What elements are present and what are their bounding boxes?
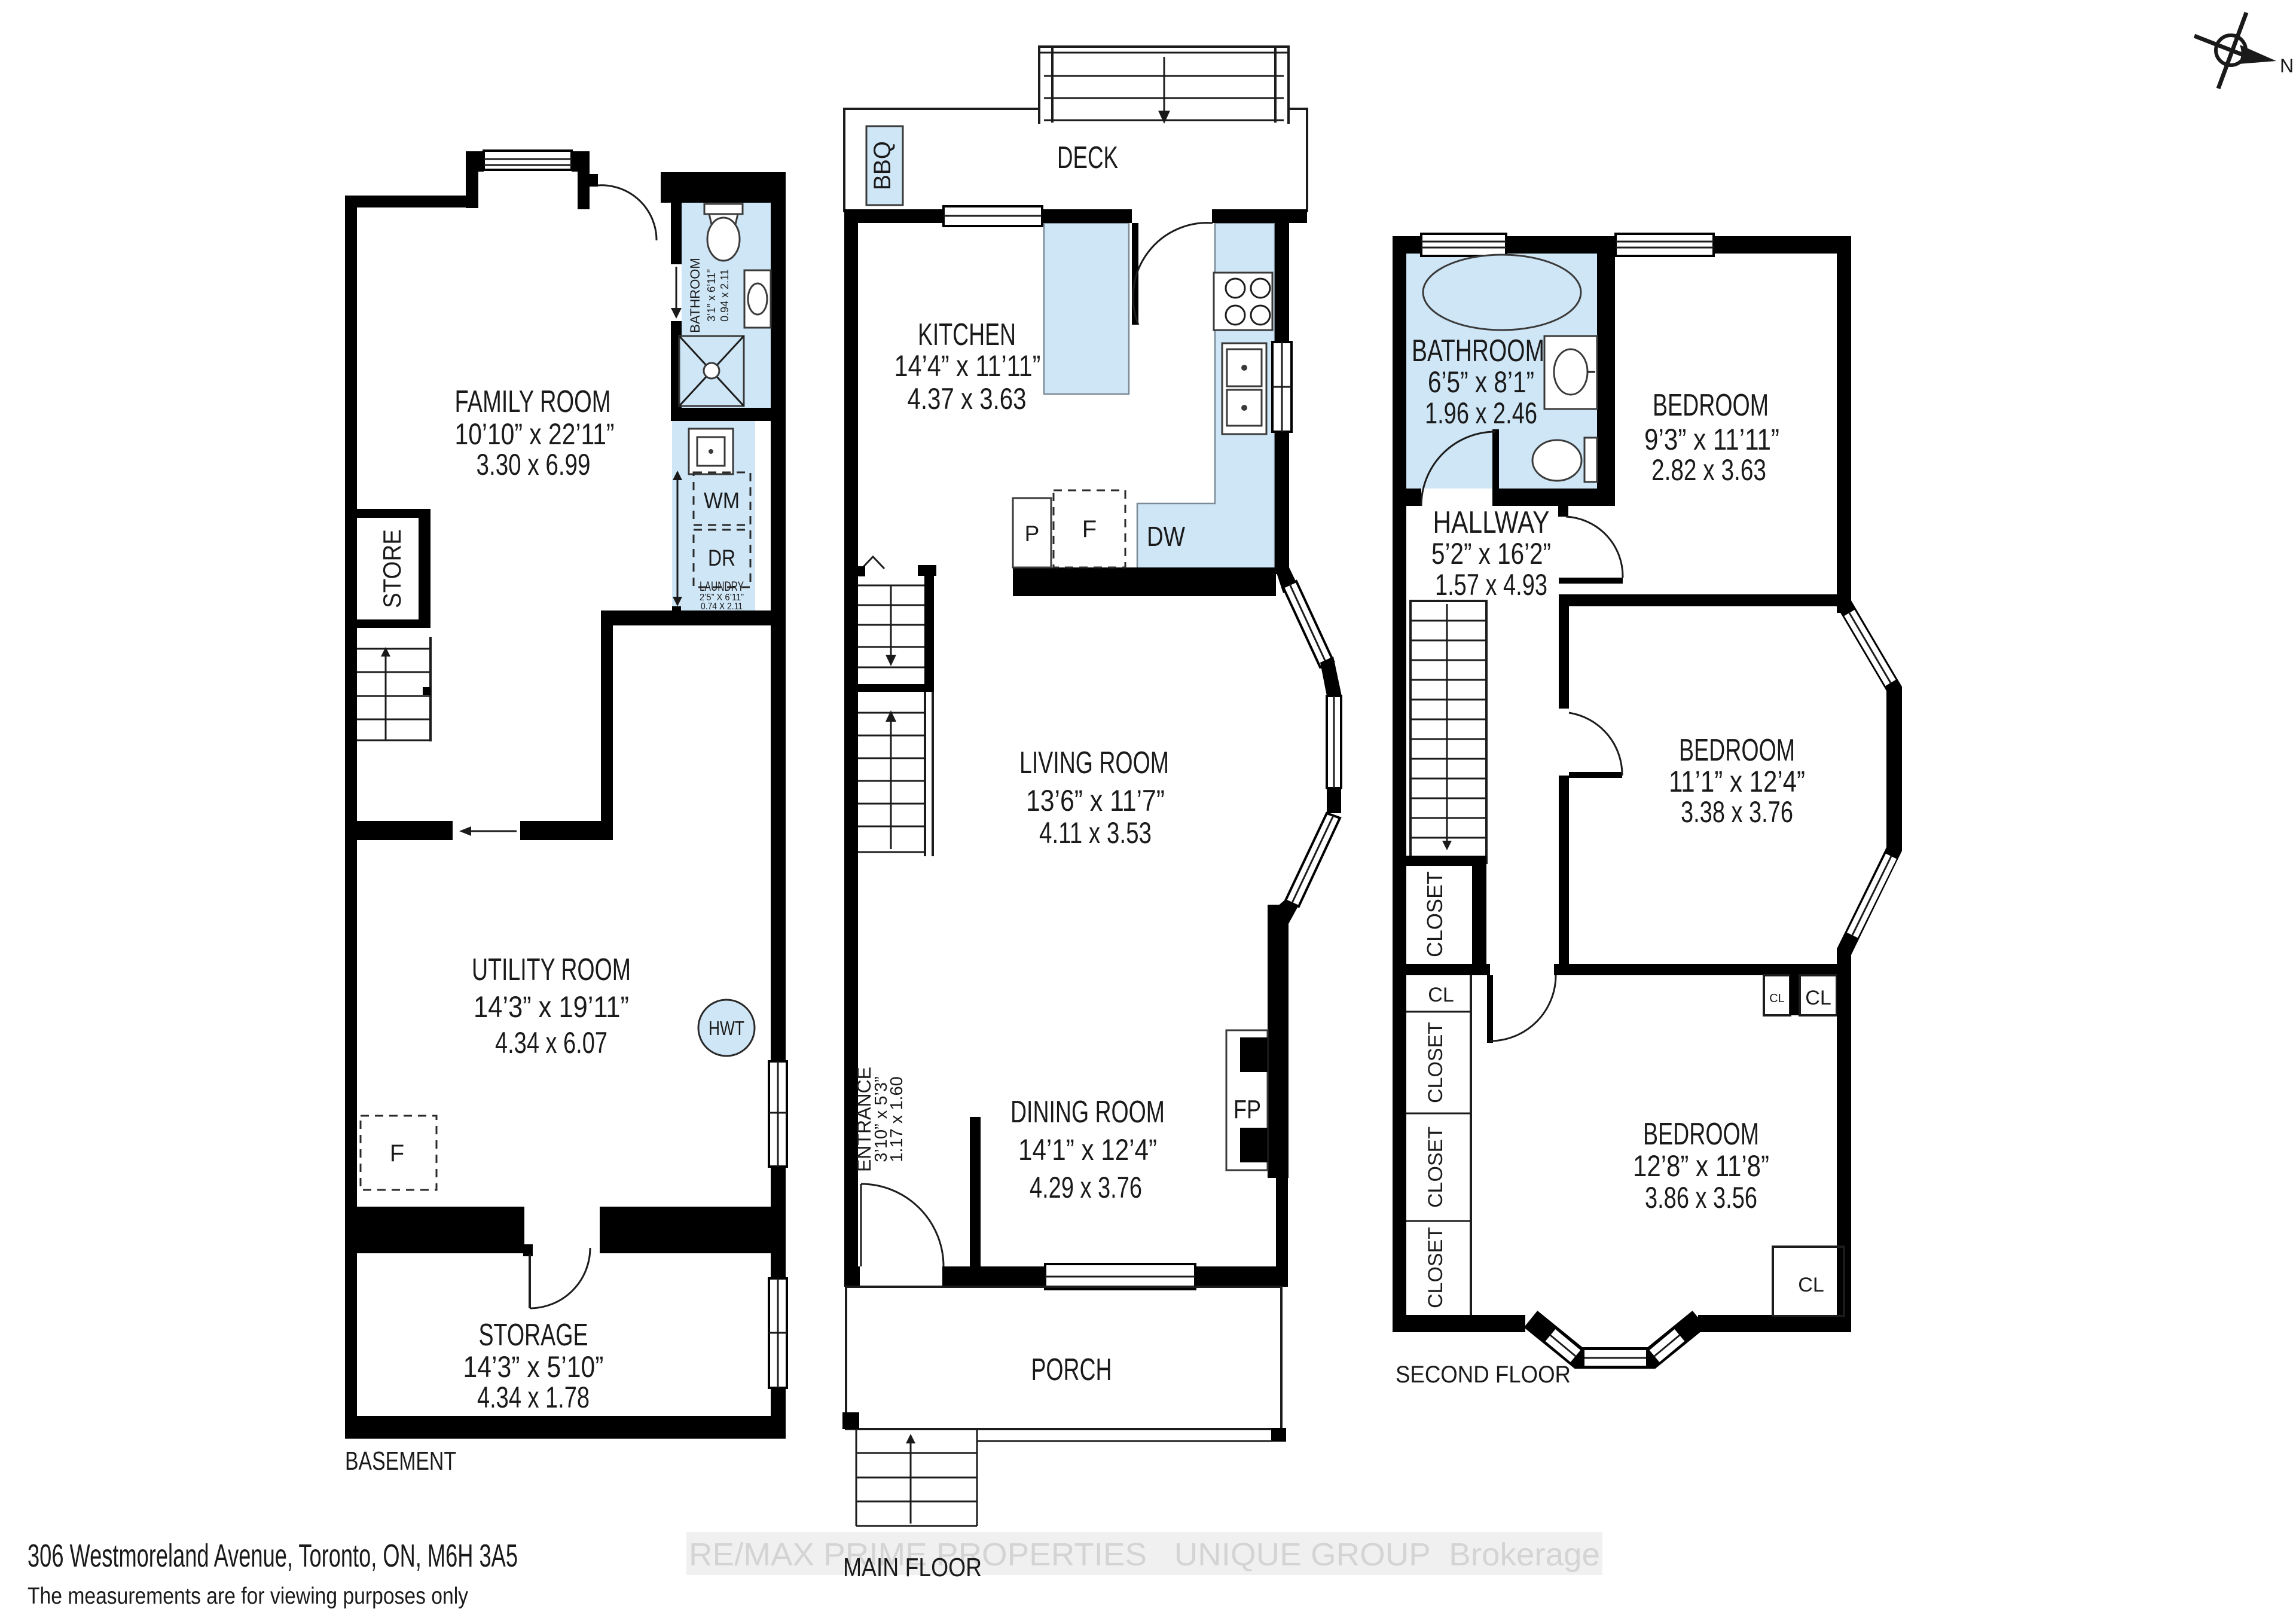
svg-text:3.30 x 6.99: 3.30 x 6.99 [477, 448, 591, 481]
svg-text:4.11 x 3.53: 4.11 x 3.53 [1039, 816, 1152, 850]
svg-text:LAUNDRY: LAUNDRY [700, 579, 744, 594]
svg-text:PORCH: PORCH [1031, 1353, 1112, 1387]
svg-text:F: F [390, 1140, 404, 1167]
svg-text:5’2” x 16’2”: 5’2” x 16’2” [1431, 537, 1551, 570]
svg-text:9’3” x 11’11”: 9’3” x 11’11” [1644, 423, 1779, 456]
svg-text:KITCHEN: KITCHEN [918, 318, 1016, 352]
svg-text:STORE: STORE [378, 529, 406, 608]
svg-text:LIVING ROOM: LIVING ROOM [1019, 746, 1169, 780]
svg-text:14’4” x 11’11”: 14’4” x 11’11” [894, 349, 1041, 383]
svg-text:F: F [1082, 516, 1097, 542]
svg-text:CLOSET: CLOSET [1424, 1227, 1447, 1308]
svg-text:P: P [1025, 521, 1040, 546]
svg-text:CLOSET: CLOSET [1424, 1127, 1447, 1208]
svg-text:12’8” x 11’8”: 12’8” x 11’8” [1633, 1149, 1769, 1183]
svg-text:FP: FP [1234, 1095, 1261, 1124]
svg-text:0.74 X 2.11: 0.74 X 2.11 [701, 602, 743, 612]
svg-text:HWT: HWT [709, 1017, 744, 1039]
svg-text:11’1” x 12’4”: 11’1” x 12’4” [1669, 765, 1805, 798]
svg-text:3.86 x 3.56: 3.86 x 3.56 [1645, 1181, 1757, 1214]
svg-text:DECK: DECK [1057, 141, 1118, 175]
svg-text:The measurements are for viewi: The measurements are for viewing purpose… [28, 1583, 468, 1609]
svg-text:STORAGE: STORAGE [479, 1318, 588, 1353]
svg-text:SECOND FLOOR: SECOND FLOOR [1396, 1362, 1571, 1388]
svg-text:BEDROOM: BEDROOM [1679, 733, 1795, 768]
svg-text:CLOSET: CLOSET [1422, 871, 1447, 957]
svg-text:0.94 x 2.11: 0.94 x 2.11 [719, 269, 731, 322]
svg-text:14’1” x 12’4”: 14’1” x 12’4” [1018, 1133, 1157, 1167]
svg-text:UTILITY ROOM: UTILITY ROOM [472, 953, 631, 987]
svg-text:CL: CL [1428, 984, 1454, 1006]
svg-text:6’5” x 8’1”: 6’5” x 8’1” [1428, 365, 1534, 399]
svg-text:4.34 x 1.78: 4.34 x 1.78 [477, 1381, 590, 1414]
svg-text:CL: CL [1798, 1274, 1824, 1296]
svg-text:3.38 x 3.76: 3.38 x 3.76 [1681, 795, 1793, 829]
svg-text:2.82 x 3.63: 2.82 x 3.63 [1651, 453, 1766, 487]
svg-text:MAIN FLOOR: MAIN FLOOR [843, 1553, 982, 1582]
svg-text:4.37 x 3.63: 4.37 x 3.63 [908, 382, 1027, 416]
svg-text:DINING ROOM: DINING ROOM [1010, 1095, 1165, 1130]
svg-text:1.17 x 1.60: 1.17 x 1.60 [887, 1076, 906, 1162]
svg-text:CL: CL [1805, 987, 1831, 1009]
svg-text:BEDROOM: BEDROOM [1643, 1117, 1759, 1152]
svg-text:WM: WM [704, 489, 740, 514]
svg-text:10’10” x 22’11”: 10’10” x 22’11” [455, 417, 615, 451]
svg-text:CL: CL [1769, 992, 1785, 1005]
svg-text:DW: DW [1147, 521, 1185, 552]
svg-text:4.29 x 3.76: 4.29 x 3.76 [1030, 1171, 1142, 1204]
svg-text:RE/MAX PRIME PROPERTIES UNIQ: RE/MAX PRIME PROPERTIES UNIQUE GROUP Bro… [689, 1537, 1600, 1573]
svg-text:BATHROOM: BATHROOM [688, 258, 703, 332]
svg-text:FAMILY ROOM: FAMILY ROOM [455, 384, 611, 419]
svg-text:DR: DR [708, 546, 735, 571]
svg-text:BATHROOM: BATHROOM [1412, 334, 1544, 368]
svg-text:1.57 x 4.93: 1.57 x 4.93 [1435, 568, 1547, 602]
svg-text:14’3” x 5’10”: 14’3” x 5’10” [463, 1350, 604, 1384]
svg-text:14’3” x 19’11”: 14’3” x 19’11” [474, 990, 629, 1024]
svg-text:1.96 x 2.46: 1.96 x 2.46 [1425, 396, 1537, 430]
svg-text:3’1” x 6’11”: 3’1” x 6’11” [706, 269, 717, 322]
svg-text:BBQ: BBQ [869, 141, 896, 190]
svg-text:N: N [2280, 55, 2294, 77]
svg-text:BASEMENT: BASEMENT [345, 1446, 456, 1476]
svg-text:4.34 x 6.07: 4.34 x 6.07 [495, 1026, 607, 1060]
svg-text:306 Westmoreland Avenue, Toron: 306 Westmoreland Avenue, Toronto, ON, M6… [28, 1538, 518, 1574]
svg-text:CLOSET: CLOSET [1424, 1022, 1447, 1103]
svg-text:13’6” x 11’7”: 13’6” x 11’7” [1026, 784, 1165, 817]
svg-text:BEDROOM: BEDROOM [1653, 388, 1769, 423]
svg-text:HALLWAY: HALLWAY [1433, 505, 1550, 540]
